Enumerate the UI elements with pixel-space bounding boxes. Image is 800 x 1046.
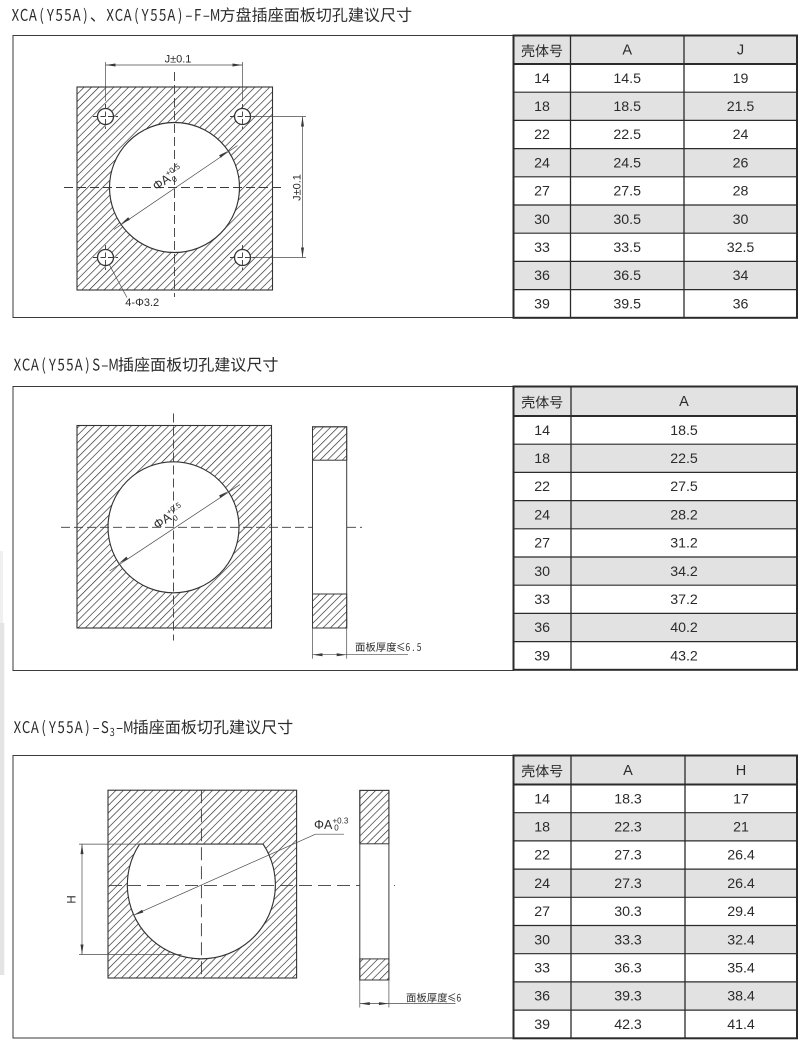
svg-text:37.2: 37.2	[670, 592, 698, 608]
svg-text:36: 36	[534, 989, 550, 1005]
svg-text:33: 33	[534, 592, 550, 608]
svg-text:14.5: 14.5	[613, 71, 641, 87]
svg-text:39.3: 39.3	[614, 989, 642, 1005]
svg-text:22.3: 22.3	[614, 820, 642, 836]
svg-text:24.5: 24.5	[613, 155, 641, 171]
svg-text:14: 14	[534, 423, 550, 439]
svg-text:36: 36	[534, 620, 550, 636]
svg-text:40.2: 40.2	[670, 620, 698, 636]
svg-text:34: 34	[733, 268, 749, 284]
svg-text:32.4: 32.4	[727, 932, 755, 948]
svg-text:30.5: 30.5	[613, 212, 641, 228]
svg-text:26.4: 26.4	[727, 848, 755, 864]
svg-text:J±0.1: J±0.1	[292, 174, 304, 201]
svg-text:30: 30	[534, 212, 550, 228]
svg-text:4-Φ3.2: 4-Φ3.2	[125, 297, 159, 309]
svg-text:30: 30	[733, 212, 749, 228]
svg-text:17: 17	[733, 791, 749, 807]
svg-text:24: 24	[534, 507, 550, 523]
svg-text:36.3: 36.3	[614, 961, 642, 977]
svg-text:14: 14	[534, 71, 550, 87]
svg-text:35.4: 35.4	[727, 961, 755, 977]
svg-text:31.2: 31.2	[670, 536, 698, 552]
svg-text:18: 18	[534, 820, 550, 836]
svg-text:27: 27	[534, 536, 550, 552]
svg-text:43.2: 43.2	[670, 648, 698, 664]
svg-text:26: 26	[733, 155, 749, 171]
svg-text:18: 18	[534, 99, 550, 115]
svg-text:18.5: 18.5	[613, 99, 641, 115]
svg-text:39.5: 39.5	[613, 296, 641, 312]
svg-text:14: 14	[534, 791, 550, 807]
svg-text:21.5: 21.5	[727, 99, 755, 115]
svg-text:34.2: 34.2	[670, 564, 698, 580]
svg-text:38.4: 38.4	[727, 989, 755, 1005]
svg-text:J: J	[737, 43, 744, 59]
svg-text:H: H	[67, 895, 79, 903]
svg-text:19: 19	[733, 71, 749, 87]
svg-text:18.5: 18.5	[670, 423, 698, 439]
svg-text:33.3: 33.3	[614, 932, 642, 948]
svg-text:28: 28	[733, 184, 749, 200]
svg-text:22: 22	[534, 479, 550, 495]
svg-text:30.3: 30.3	[614, 904, 642, 920]
svg-text:26.4: 26.4	[727, 876, 755, 892]
svg-text:33.5: 33.5	[613, 240, 641, 256]
svg-text:22.5: 22.5	[670, 451, 698, 467]
svg-text:27.3: 27.3	[614, 876, 642, 892]
svg-text:27: 27	[534, 184, 550, 200]
svg-text:33: 33	[534, 240, 550, 256]
svg-text:H: H	[736, 763, 746, 779]
svg-text:J±0.1: J±0.1	[165, 53, 192, 65]
svg-text:30: 30	[534, 564, 550, 580]
svg-text:22.5: 22.5	[613, 127, 641, 143]
svg-text:36: 36	[534, 268, 550, 284]
svg-text:22: 22	[534, 127, 550, 143]
svg-text:32.5: 32.5	[727, 240, 755, 256]
svg-text:39: 39	[534, 648, 550, 664]
svg-text:39: 39	[534, 1017, 550, 1033]
svg-text:27.5: 27.5	[613, 184, 641, 200]
svg-text:39: 39	[534, 296, 550, 312]
svg-text:18: 18	[534, 451, 550, 467]
svg-text:33: 33	[534, 961, 550, 977]
svg-text:24: 24	[534, 876, 550, 892]
svg-text:A: A	[679, 394, 689, 410]
svg-text:18.3: 18.3	[614, 791, 642, 807]
svg-text:29.4: 29.4	[727, 904, 755, 920]
svg-text:30: 30	[534, 932, 550, 948]
svg-text:27: 27	[534, 904, 550, 920]
svg-text:ΦA: ΦA	[314, 818, 333, 832]
svg-text:36.5: 36.5	[613, 268, 641, 284]
svg-text:21: 21	[733, 820, 749, 836]
svg-text:A: A	[623, 763, 633, 779]
svg-text:A: A	[622, 43, 632, 59]
svg-text:41.4: 41.4	[727, 1017, 755, 1033]
svg-text:0: 0	[334, 823, 339, 832]
svg-text:27.3: 27.3	[614, 848, 642, 864]
svg-text:24: 24	[534, 155, 550, 171]
svg-text:22: 22	[534, 848, 550, 864]
svg-text:42.3: 42.3	[614, 1017, 642, 1033]
svg-text:27.5: 27.5	[670, 479, 698, 495]
svg-text:28.2: 28.2	[670, 507, 698, 523]
svg-text:24: 24	[733, 127, 749, 143]
svg-text:36: 36	[733, 296, 749, 312]
